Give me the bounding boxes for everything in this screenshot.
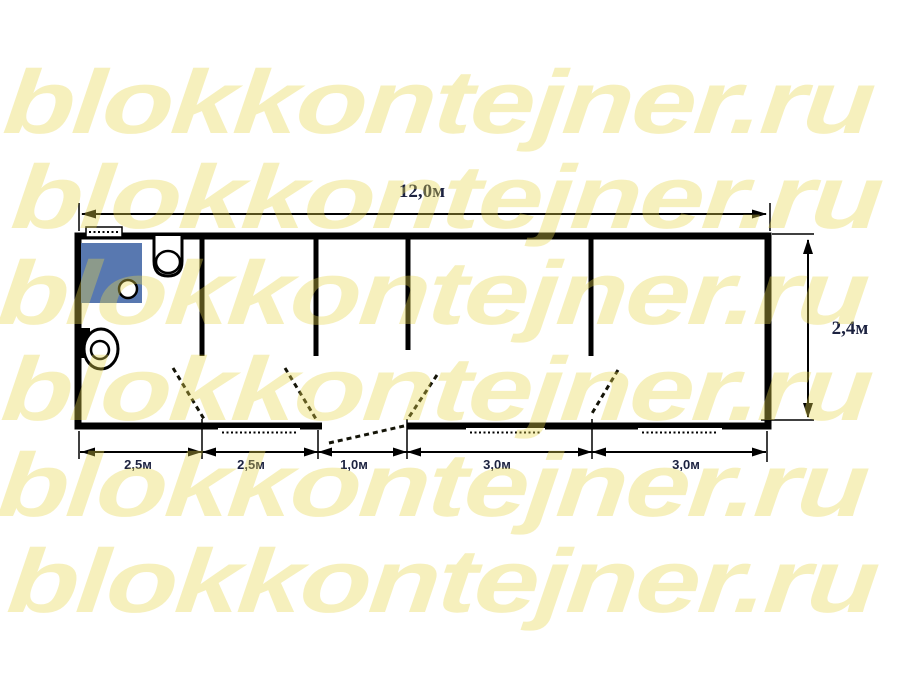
- dimension-label-segment-4: 3,0м: [472, 457, 522, 472]
- window-room-4: [466, 428, 545, 437]
- window-room-5: [638, 428, 722, 437]
- dimension-top: [79, 203, 770, 231]
- wash-basin: [154, 236, 182, 276]
- window-room-2: [218, 428, 300, 437]
- entrance-opening: [322, 422, 407, 432]
- window-top-left: [86, 227, 122, 237]
- dimension-label-segment-1: 2,5м: [113, 457, 163, 472]
- floor-plan: [0, 0, 900, 675]
- diagram-stage: 12,0м 2,4м 2,5м 2,5м 1,0м 3,0м 3,0м blok…: [0, 0, 900, 675]
- dimension-label-segment-2: 2,5м: [226, 457, 276, 472]
- dimension-label-total-length: 12,0м: [394, 181, 450, 203]
- dimension-label-height: 2,4м: [826, 318, 874, 340]
- dimension-label-segment-5: 3,0м: [661, 457, 711, 472]
- shower-drain: [119, 280, 137, 298]
- dimension-label-segment-3: 1,0м: [329, 457, 379, 472]
